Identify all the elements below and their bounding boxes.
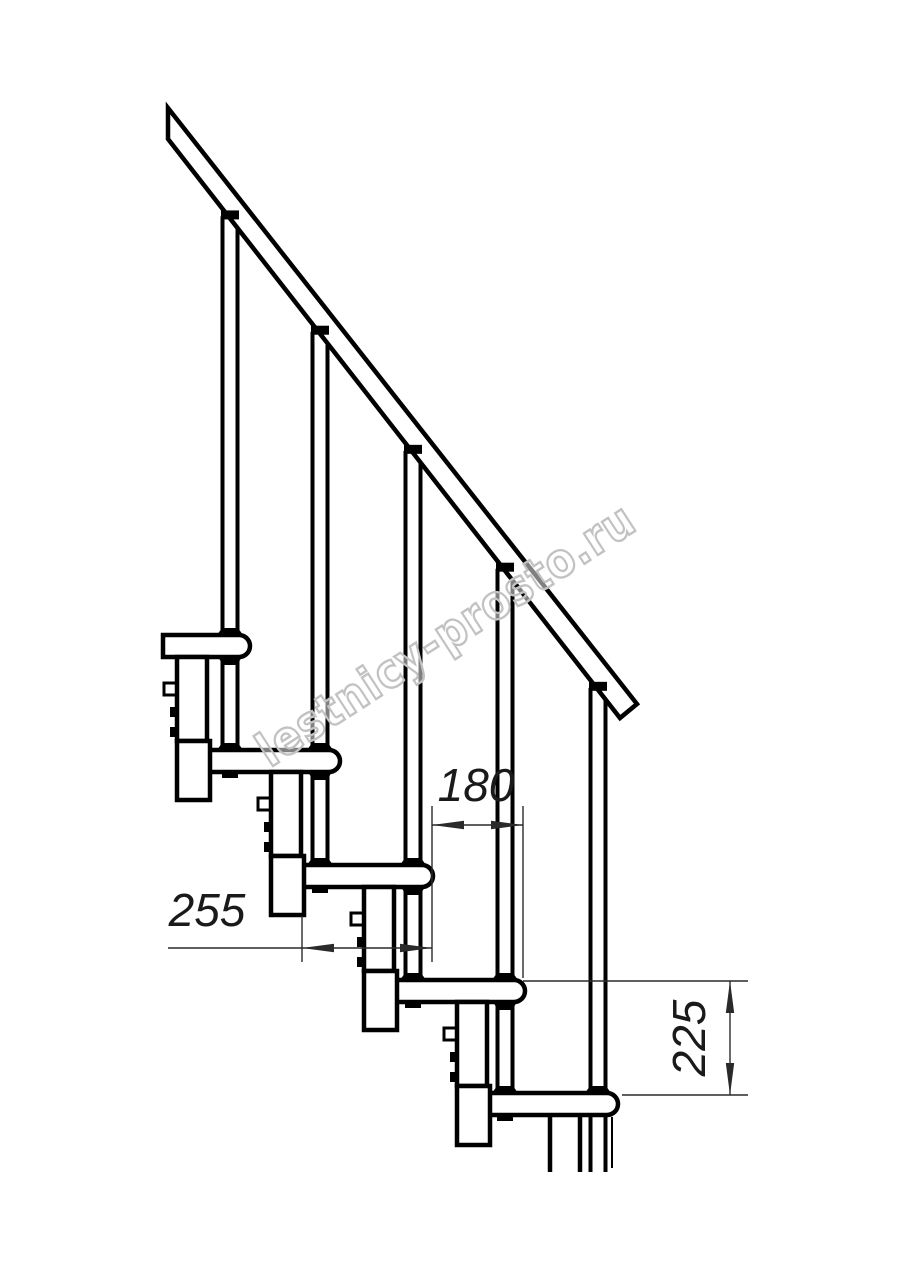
rail-connector-1 xyxy=(221,210,239,219)
rail-connector-2 xyxy=(311,326,329,335)
module-bolt-b-1 xyxy=(170,727,178,737)
tread-bolt-nut-4 xyxy=(405,1001,421,1008)
tread-bolt-nut-3 xyxy=(312,886,328,893)
module-column-4 xyxy=(457,1002,487,1086)
tread-bolt-nut-2 xyxy=(222,771,238,778)
module-bolt-b-3 xyxy=(357,957,365,967)
staircase-drawing: 180 255 225 lestnicy-prosto.ru xyxy=(0,0,914,1280)
module-bolt-b-2 xyxy=(264,842,272,852)
module-sleeve-3 xyxy=(364,971,397,1030)
arrow-left-icon xyxy=(432,821,464,829)
module-bolt-a-1 xyxy=(170,707,178,717)
module-column-1 xyxy=(177,657,207,741)
module-bolt-a-4 xyxy=(450,1052,458,1062)
tread-bolt-nut-5 xyxy=(497,1114,513,1121)
tread-1 xyxy=(163,635,250,657)
module-sleeve-1 xyxy=(177,741,210,800)
module-bolt-a-3 xyxy=(357,937,365,947)
dim-label-180: 180 xyxy=(438,759,515,811)
rail-connector-5 xyxy=(589,682,607,691)
arrow-down-icon xyxy=(726,1063,734,1095)
arrow-left-icon xyxy=(302,944,334,952)
tread-3 xyxy=(302,865,433,887)
module-column-2 xyxy=(271,772,301,856)
module-sleeve-2 xyxy=(271,856,304,915)
module-bolt-a-2 xyxy=(264,822,272,832)
dim-label-255: 255 xyxy=(168,884,246,936)
dimension-180: 180 xyxy=(432,759,523,978)
dimension-225: 225 xyxy=(523,981,748,1095)
module-bolt-b-4 xyxy=(450,1072,458,1082)
module-column-3 xyxy=(364,887,394,971)
arrow-right-icon xyxy=(491,821,523,829)
rail-connector-3 xyxy=(404,445,422,454)
tread-5 xyxy=(488,1093,618,1115)
module-sleeve-4 xyxy=(457,1086,490,1145)
arrow-right-icon xyxy=(400,944,432,952)
drawing-page: 180 255 225 lestnicy-prosto.ru xyxy=(0,0,914,1280)
tread-4 xyxy=(395,980,525,1002)
dim-label-225: 225 xyxy=(663,999,715,1077)
arrow-up-icon xyxy=(726,981,734,1013)
